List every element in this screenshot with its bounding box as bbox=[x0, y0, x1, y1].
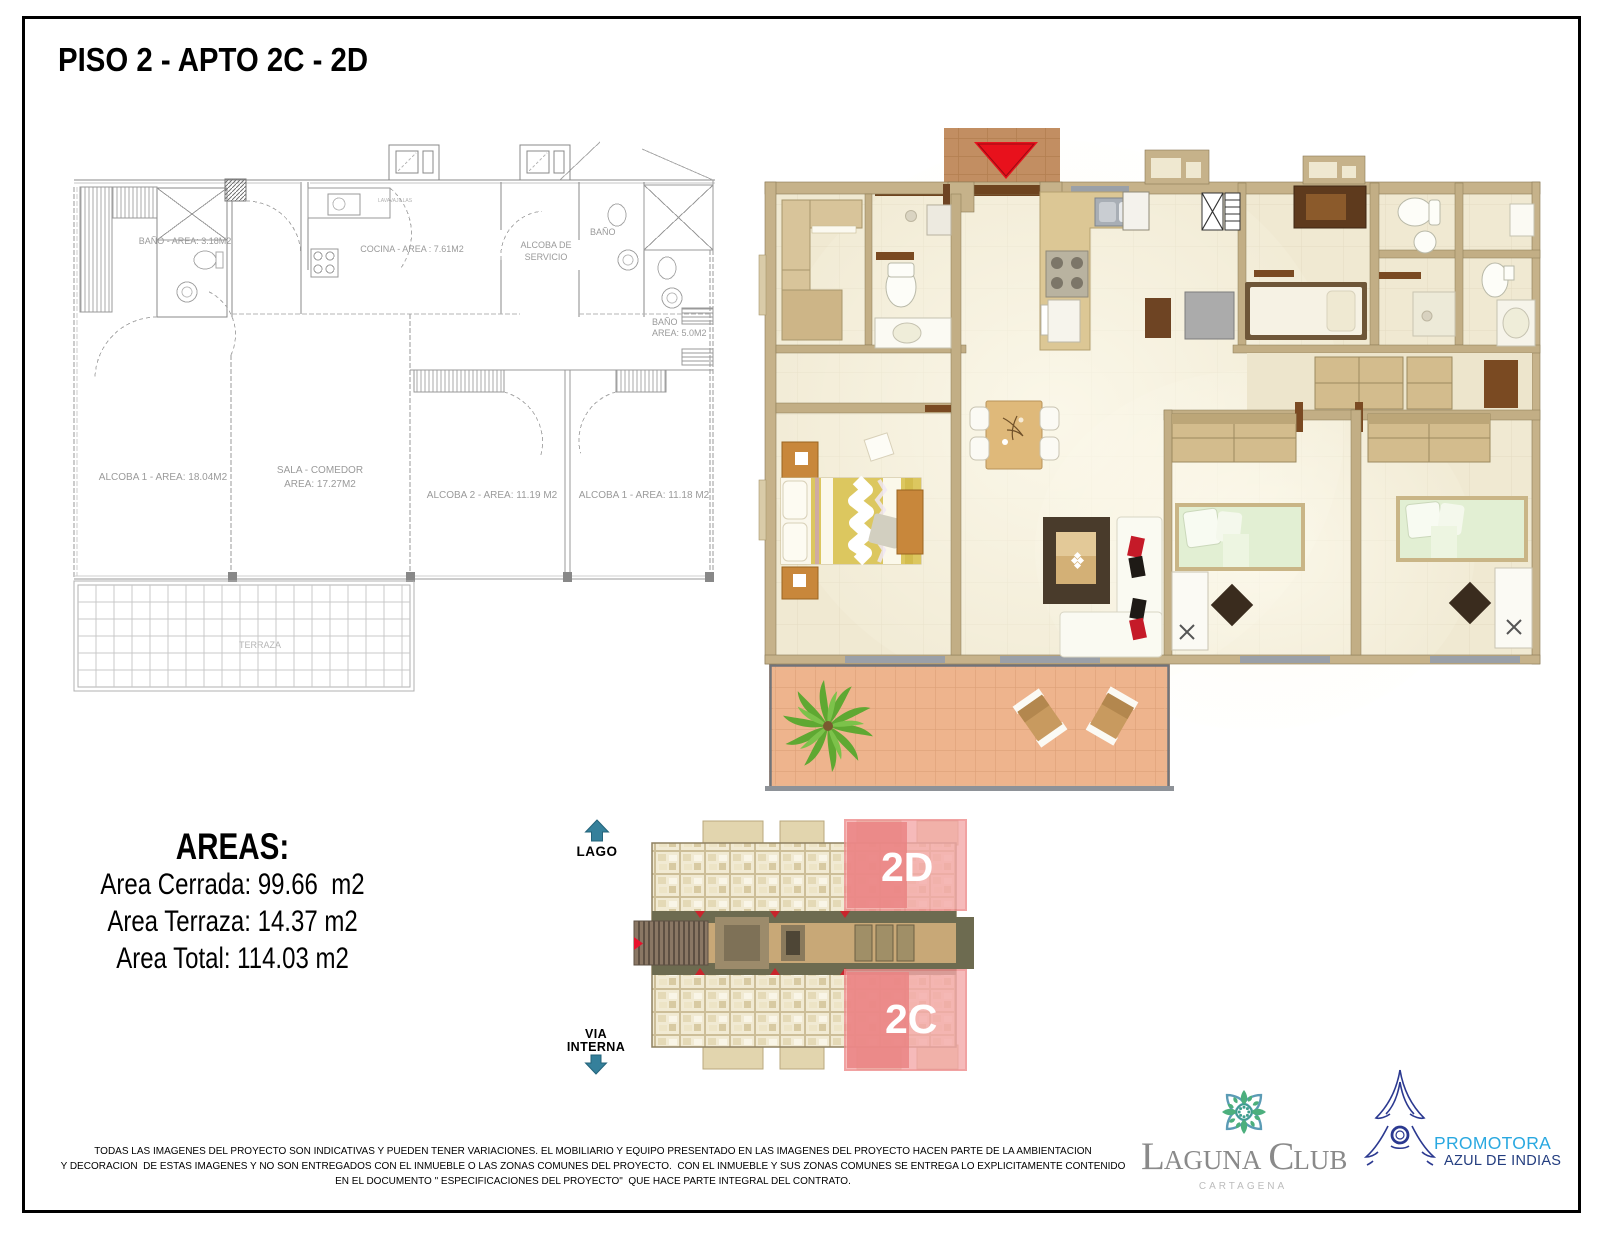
svg-text:ALCOBA DE: ALCOBA DE bbox=[520, 240, 571, 250]
svg-text:LAGUNACLUB: LAGUNACLUB bbox=[1141, 1135, 1347, 1178]
svg-text:COCINA - AREA : 7.61M2: COCINA - AREA : 7.61M2 bbox=[360, 244, 464, 254]
svg-text:2D: 2D bbox=[881, 844, 933, 890]
svg-text:LAGO: LAGO bbox=[577, 844, 618, 859]
svg-text:ALCOBA 1 - AREA: 18.04M2: ALCOBA 1 - AREA: 18.04M2 bbox=[99, 472, 228, 483]
svg-text:INTERNA: INTERNA bbox=[567, 1040, 625, 1054]
svg-text:CARTAGENA: CARTAGENA bbox=[1199, 1181, 1287, 1192]
svg-text:AREA: 17.27M2: AREA: 17.27M2 bbox=[284, 479, 356, 490]
svg-text:AREA: 5.0M2: AREA: 5.0M2 bbox=[652, 328, 707, 338]
svg-text:ALCOBA 2 - AREA: 11.19 M2: ALCOBA 2 - AREA: 11.19 M2 bbox=[427, 490, 558, 501]
svg-text:AZUL DE INDIAS: AZUL DE INDIAS bbox=[1444, 1153, 1561, 1169]
svg-text:ALCOBA 1 - AREA: 11.18 M2: ALCOBA 1 - AREA: 11.18 M2 bbox=[579, 490, 710, 501]
svg-text:BAÑO - AREA: 3.18M2: BAÑO - AREA: 3.18M2 bbox=[139, 236, 232, 246]
svg-text:VIA: VIA bbox=[585, 1027, 607, 1041]
svg-text:BAÑO: BAÑO bbox=[590, 227, 616, 237]
svg-text:PROMOTORA: PROMOTORA bbox=[1434, 1133, 1551, 1153]
svg-text:TERRAZA: TERRAZA bbox=[239, 640, 281, 650]
svg-text:SERVICIO: SERVICIO bbox=[525, 252, 568, 262]
svg-text:LAVAVAJILLAS: LAVAVAJILLAS bbox=[378, 198, 413, 204]
svg-text:2C: 2C bbox=[885, 996, 937, 1042]
svg-text:BAÑO: BAÑO bbox=[652, 317, 678, 327]
svg-text:SALA - COMEDOR: SALA - COMEDOR bbox=[277, 465, 363, 476]
